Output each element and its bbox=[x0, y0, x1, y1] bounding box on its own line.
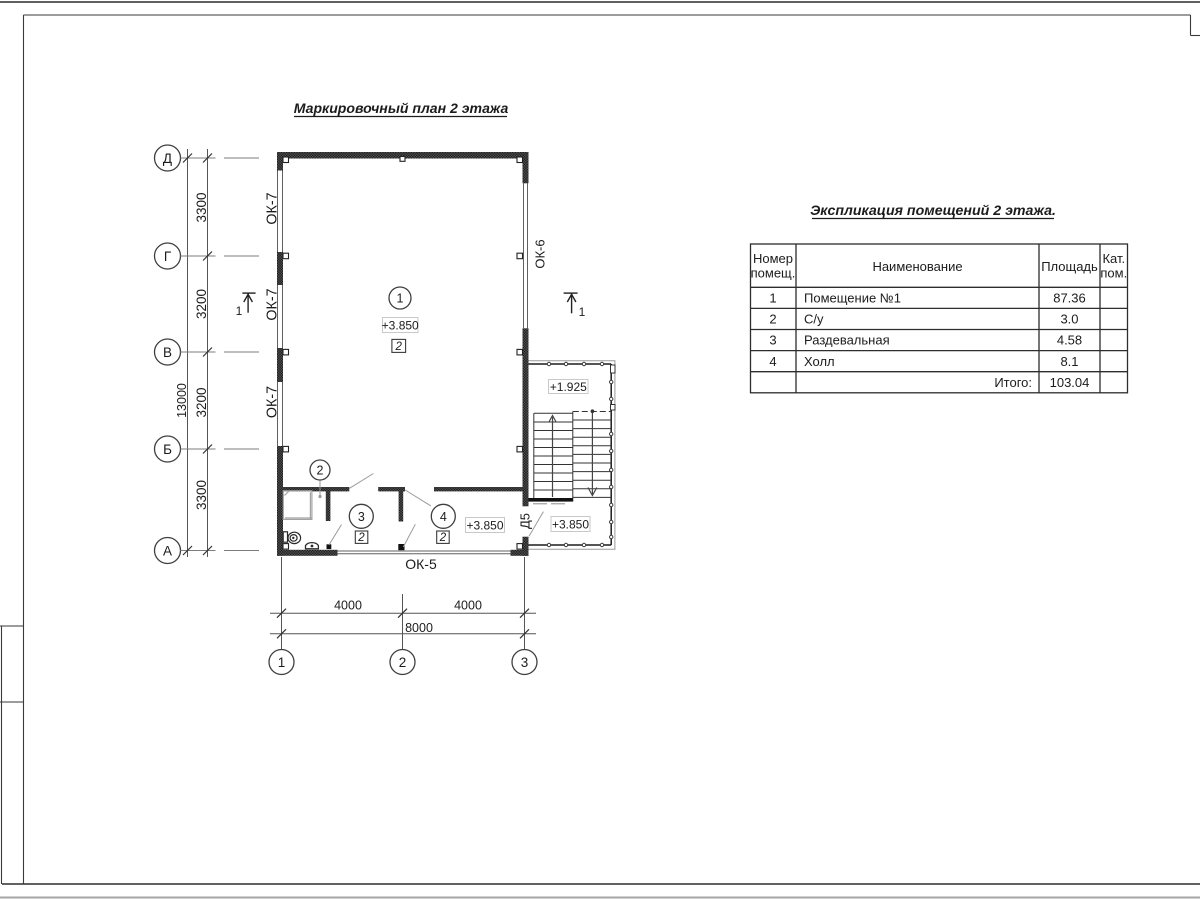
svg-text:Маркировочный план 2 этажа: Маркировочный план 2 этажа bbox=[294, 100, 509, 116]
svg-text:Кат.: Кат. bbox=[1102, 251, 1125, 266]
svg-text:ОК-7: ОК-7 bbox=[265, 192, 281, 224]
svg-text:Б: Б bbox=[163, 442, 172, 457]
svg-text:Холл: Холл bbox=[804, 354, 835, 369]
svg-text:1: 1 bbox=[278, 655, 286, 670]
svg-text:1: 1 bbox=[236, 304, 243, 318]
svg-text:Г: Г bbox=[164, 249, 172, 264]
svg-text:8.1: 8.1 bbox=[1060, 354, 1078, 369]
svg-text:ОК-7: ОК-7 bbox=[265, 288, 281, 320]
svg-text:В: В bbox=[163, 345, 172, 360]
svg-text:Раздевальная: Раздевальная bbox=[804, 333, 890, 348]
svg-text:13000: 13000 bbox=[175, 383, 189, 418]
svg-text:Помещение №1: Помещение №1 bbox=[804, 291, 901, 306]
svg-text:+1.925: +1.925 bbox=[550, 380, 587, 394]
svg-text:С/у: С/у bbox=[804, 312, 824, 327]
svg-text:2: 2 bbox=[439, 532, 447, 544]
svg-text:Наименование: Наименование bbox=[872, 259, 962, 274]
svg-text:Д5: Д5 bbox=[518, 513, 533, 529]
svg-text:4: 4 bbox=[769, 354, 776, 369]
svg-text:+3.850: +3.850 bbox=[382, 319, 419, 333]
svg-text:ОК-7: ОК-7 bbox=[265, 386, 281, 418]
svg-text:4: 4 bbox=[440, 510, 447, 524]
svg-text:Экспликация помещений 2 этажа.: Экспликация помещений 2 этажа. bbox=[810, 203, 1056, 219]
svg-text:1: 1 bbox=[397, 292, 404, 306]
svg-text:+3.850: +3.850 bbox=[466, 519, 503, 533]
svg-text:2: 2 bbox=[399, 655, 407, 670]
svg-text:4000: 4000 bbox=[334, 599, 362, 613]
svg-text:3: 3 bbox=[521, 655, 529, 670]
svg-text:3: 3 bbox=[769, 333, 776, 348]
svg-text:3200: 3200 bbox=[194, 387, 209, 417]
svg-text:Итого:: Итого: bbox=[994, 375, 1032, 390]
svg-text:3300: 3300 bbox=[194, 192, 209, 222]
svg-text:3.0: 3.0 bbox=[1060, 312, 1078, 327]
svg-text:1: 1 bbox=[769, 291, 776, 306]
svg-text:2: 2 bbox=[769, 312, 776, 327]
svg-text:103.04: 103.04 bbox=[1050, 375, 1090, 390]
svg-text:3300: 3300 bbox=[194, 480, 209, 510]
svg-text:2: 2 bbox=[357, 532, 365, 544]
svg-text:А: А bbox=[163, 543, 172, 558]
svg-text:1: 1 bbox=[579, 305, 586, 319]
svg-text:4000: 4000 bbox=[454, 599, 482, 613]
svg-text:2: 2 bbox=[317, 464, 324, 478]
svg-text:+3.850: +3.850 bbox=[552, 518, 589, 532]
svg-text:Площадь: Площадь bbox=[1041, 259, 1098, 274]
svg-text:Д: Д bbox=[163, 151, 172, 166]
svg-text:87.36: 87.36 bbox=[1053, 291, 1086, 306]
svg-text:ОК-5: ОК-5 bbox=[405, 556, 437, 572]
svg-text:4.58: 4.58 bbox=[1057, 333, 1082, 348]
svg-text:Номер: Номер bbox=[753, 251, 793, 266]
svg-text:помещ.: помещ. bbox=[751, 266, 796, 281]
svg-text:3: 3 bbox=[358, 510, 365, 524]
svg-text:ОК-6: ОК-6 bbox=[533, 239, 548, 268]
svg-text:8000: 8000 bbox=[405, 621, 433, 635]
svg-text:3200: 3200 bbox=[194, 289, 209, 319]
svg-text:2: 2 bbox=[394, 341, 402, 353]
svg-text:пом.: пом. bbox=[1100, 266, 1127, 281]
